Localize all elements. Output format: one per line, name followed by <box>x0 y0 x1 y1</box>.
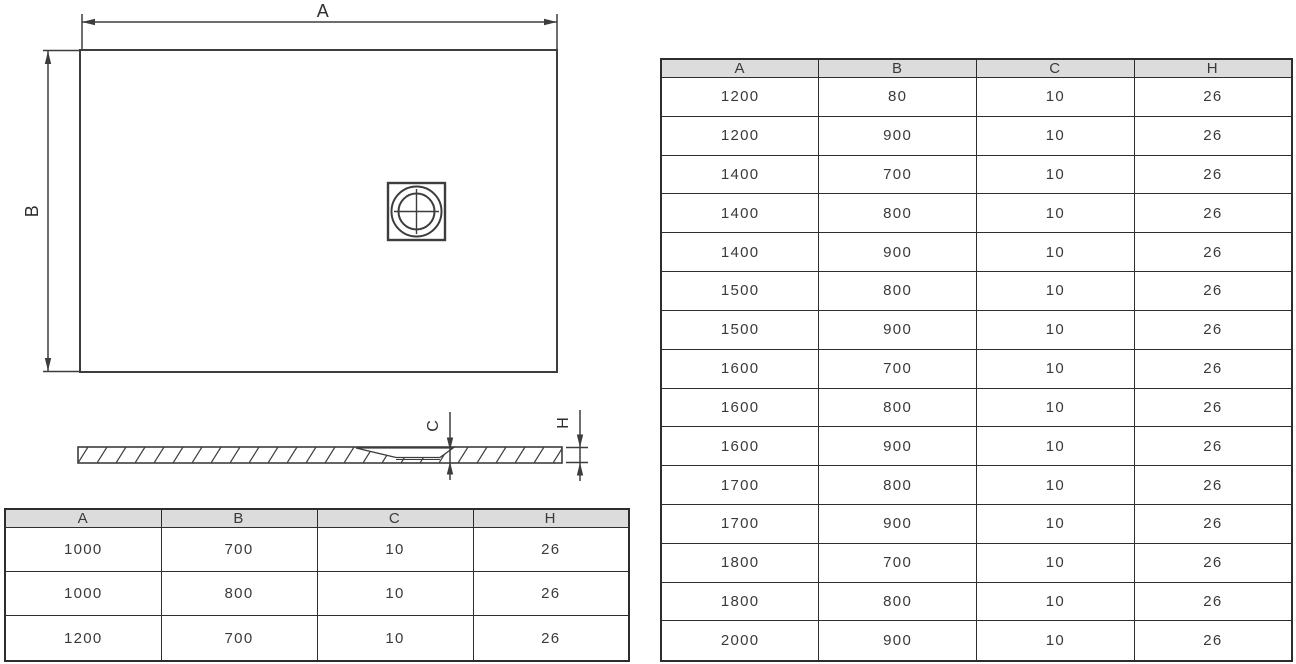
header-row: ABCH <box>661 59 1292 78</box>
table-cell: 1800 <box>661 543 819 582</box>
drain-icon <box>388 183 445 240</box>
table-cell: 26 <box>1134 349 1292 388</box>
table-cell: 2000 <box>661 621 819 661</box>
table-cell: 10 <box>317 572 473 616</box>
table-cell: 900 <box>819 233 977 272</box>
table-cell: 800 <box>819 272 977 311</box>
table-cell: 10 <box>977 504 1135 543</box>
table-cell: 800 <box>161 572 317 616</box>
table-cell: 26 <box>473 528 629 572</box>
size-table-small: ABCH100070010261000800102612007001026 <box>4 508 630 662</box>
table-row: 14009001026 <box>661 233 1292 272</box>
table-cell: 26 <box>1134 194 1292 233</box>
arrowhead-down-icon <box>577 435 583 448</box>
plan-view <box>43 14 557 372</box>
table-cell: 26 <box>1134 621 1292 661</box>
tray-outline <box>80 50 557 372</box>
table-cell: 10 <box>977 466 1135 505</box>
table-row: 18007001026 <box>661 543 1292 582</box>
table-row: 1200801026 <box>661 78 1292 117</box>
table-cell: 900 <box>819 427 977 466</box>
table-cell: 10 <box>977 621 1135 661</box>
profile-view <box>78 410 588 481</box>
table-cell: 1400 <box>661 233 819 272</box>
column-header: H <box>1134 59 1292 78</box>
column-header: B <box>161 509 317 528</box>
table-row: 14007001026 <box>661 155 1292 194</box>
table-cell: 26 <box>1134 466 1292 505</box>
table-cell: 800 <box>819 388 977 427</box>
table-cell: 10 <box>977 388 1135 427</box>
table-cell: 80 <box>819 78 977 117</box>
table-cell: 26 <box>1134 155 1292 194</box>
table-cell: 10 <box>317 616 473 661</box>
table-cell: 10 <box>977 427 1135 466</box>
dim-label-h: H <box>555 417 572 429</box>
table-cell: 1500 <box>661 272 819 311</box>
table-row: 15009001026 <box>661 310 1292 349</box>
table-cell: 1000 <box>5 528 161 572</box>
size-table-small-wrapper: ABCH100070010261000800102612007001026 <box>4 508 630 662</box>
table-cell: 10 <box>977 78 1135 117</box>
table-cell: 700 <box>161 616 317 661</box>
table-row: 10007001026 <box>5 528 629 572</box>
table-cell: 1800 <box>661 582 819 621</box>
table-cell: 10 <box>977 310 1135 349</box>
table-cell: 26 <box>473 572 629 616</box>
table-row: 16007001026 <box>661 349 1292 388</box>
table-cell: 900 <box>819 621 977 661</box>
table-row: 18008001026 <box>661 582 1292 621</box>
shower-tray-diagram: A B C H <box>0 0 650 500</box>
table-cell: 700 <box>161 528 317 572</box>
table-row: 16009001026 <box>661 427 1292 466</box>
table-cell: 1600 <box>661 388 819 427</box>
arrowhead-down-icon <box>45 358 51 371</box>
table-cell: 10 <box>977 155 1135 194</box>
column-header: H <box>473 509 629 528</box>
table-cell: 900 <box>819 310 977 349</box>
column-header: A <box>661 59 819 78</box>
table-cell: 10 <box>977 582 1135 621</box>
table-cell: 800 <box>819 466 977 505</box>
table-cell: 1000 <box>5 572 161 616</box>
table-row: 12009001026 <box>661 116 1292 155</box>
table-row: 14008001026 <box>661 194 1292 233</box>
column-header: A <box>5 509 161 528</box>
table-cell: 26 <box>1134 582 1292 621</box>
table-cell: 10 <box>977 543 1135 582</box>
arrowhead-up-icon <box>45 51 51 64</box>
dim-label-b: B <box>22 205 42 218</box>
arrowhead-right-icon <box>544 19 557 25</box>
table-cell: 900 <box>819 504 977 543</box>
arrowhead-up-icon <box>577 463 583 476</box>
table-cell: 26 <box>1134 427 1292 466</box>
size-table-large: ABCH120080102612009001026140070010261400… <box>660 58 1293 662</box>
dimension-c <box>447 412 453 480</box>
table-cell: 1200 <box>661 116 819 155</box>
table-cell: 1700 <box>661 504 819 543</box>
table-row: 15008001026 <box>661 272 1292 311</box>
column-header: C <box>317 509 473 528</box>
table-cell: 1200 <box>661 78 819 117</box>
table-cell: 10 <box>317 528 473 572</box>
table-cell: 10 <box>977 272 1135 311</box>
table-cell: 26 <box>1134 543 1292 582</box>
table-row: 17009001026 <box>661 504 1292 543</box>
table-cell: 900 <box>819 116 977 155</box>
technical-spec-sheet: A B C H <box>0 0 1296 664</box>
table-cell: 800 <box>819 194 977 233</box>
table-row: 20009001026 <box>661 621 1292 661</box>
table-cell: 700 <box>819 155 977 194</box>
table-cell: 26 <box>473 616 629 661</box>
table-cell: 26 <box>1134 504 1292 543</box>
dimension-b <box>43 51 80 372</box>
table-cell: 800 <box>819 582 977 621</box>
table-cell: 1400 <box>661 194 819 233</box>
table-cell: 700 <box>819 349 977 388</box>
column-header: C <box>977 59 1135 78</box>
table-cell: 10 <box>977 233 1135 272</box>
table-cell: 26 <box>1134 388 1292 427</box>
table-cell: 26 <box>1134 78 1292 117</box>
table-cell: 10 <box>977 194 1135 233</box>
dim-label-c: C <box>425 420 442 432</box>
table-cell: 1600 <box>661 427 819 466</box>
table-row: 10008001026 <box>5 572 629 616</box>
table-cell: 10 <box>977 349 1135 388</box>
size-table-large-wrapper: ABCH120080102612009001026140070010261400… <box>660 58 1293 662</box>
header-row: ABCH <box>5 509 629 528</box>
table-row: 17008001026 <box>661 466 1292 505</box>
table-row: 12007001026 <box>5 616 629 661</box>
tray-section-slab <box>78 447 562 463</box>
table-cell: 1400 <box>661 155 819 194</box>
table-cell: 700 <box>819 543 977 582</box>
table-row: 16008001026 <box>661 388 1292 427</box>
table-cell: 10 <box>977 116 1135 155</box>
table-cell: 26 <box>1134 233 1292 272</box>
table-cell: 1500 <box>661 310 819 349</box>
column-header: B <box>819 59 977 78</box>
table-cell: 26 <box>1134 272 1292 311</box>
table-cell: 26 <box>1134 116 1292 155</box>
table-cell: 1200 <box>5 616 161 661</box>
table-cell: 1700 <box>661 466 819 505</box>
dim-label-a: A <box>317 1 330 21</box>
arrowhead-left-icon <box>82 19 95 25</box>
table-cell: 26 <box>1134 310 1292 349</box>
table-cell: 1600 <box>661 349 819 388</box>
